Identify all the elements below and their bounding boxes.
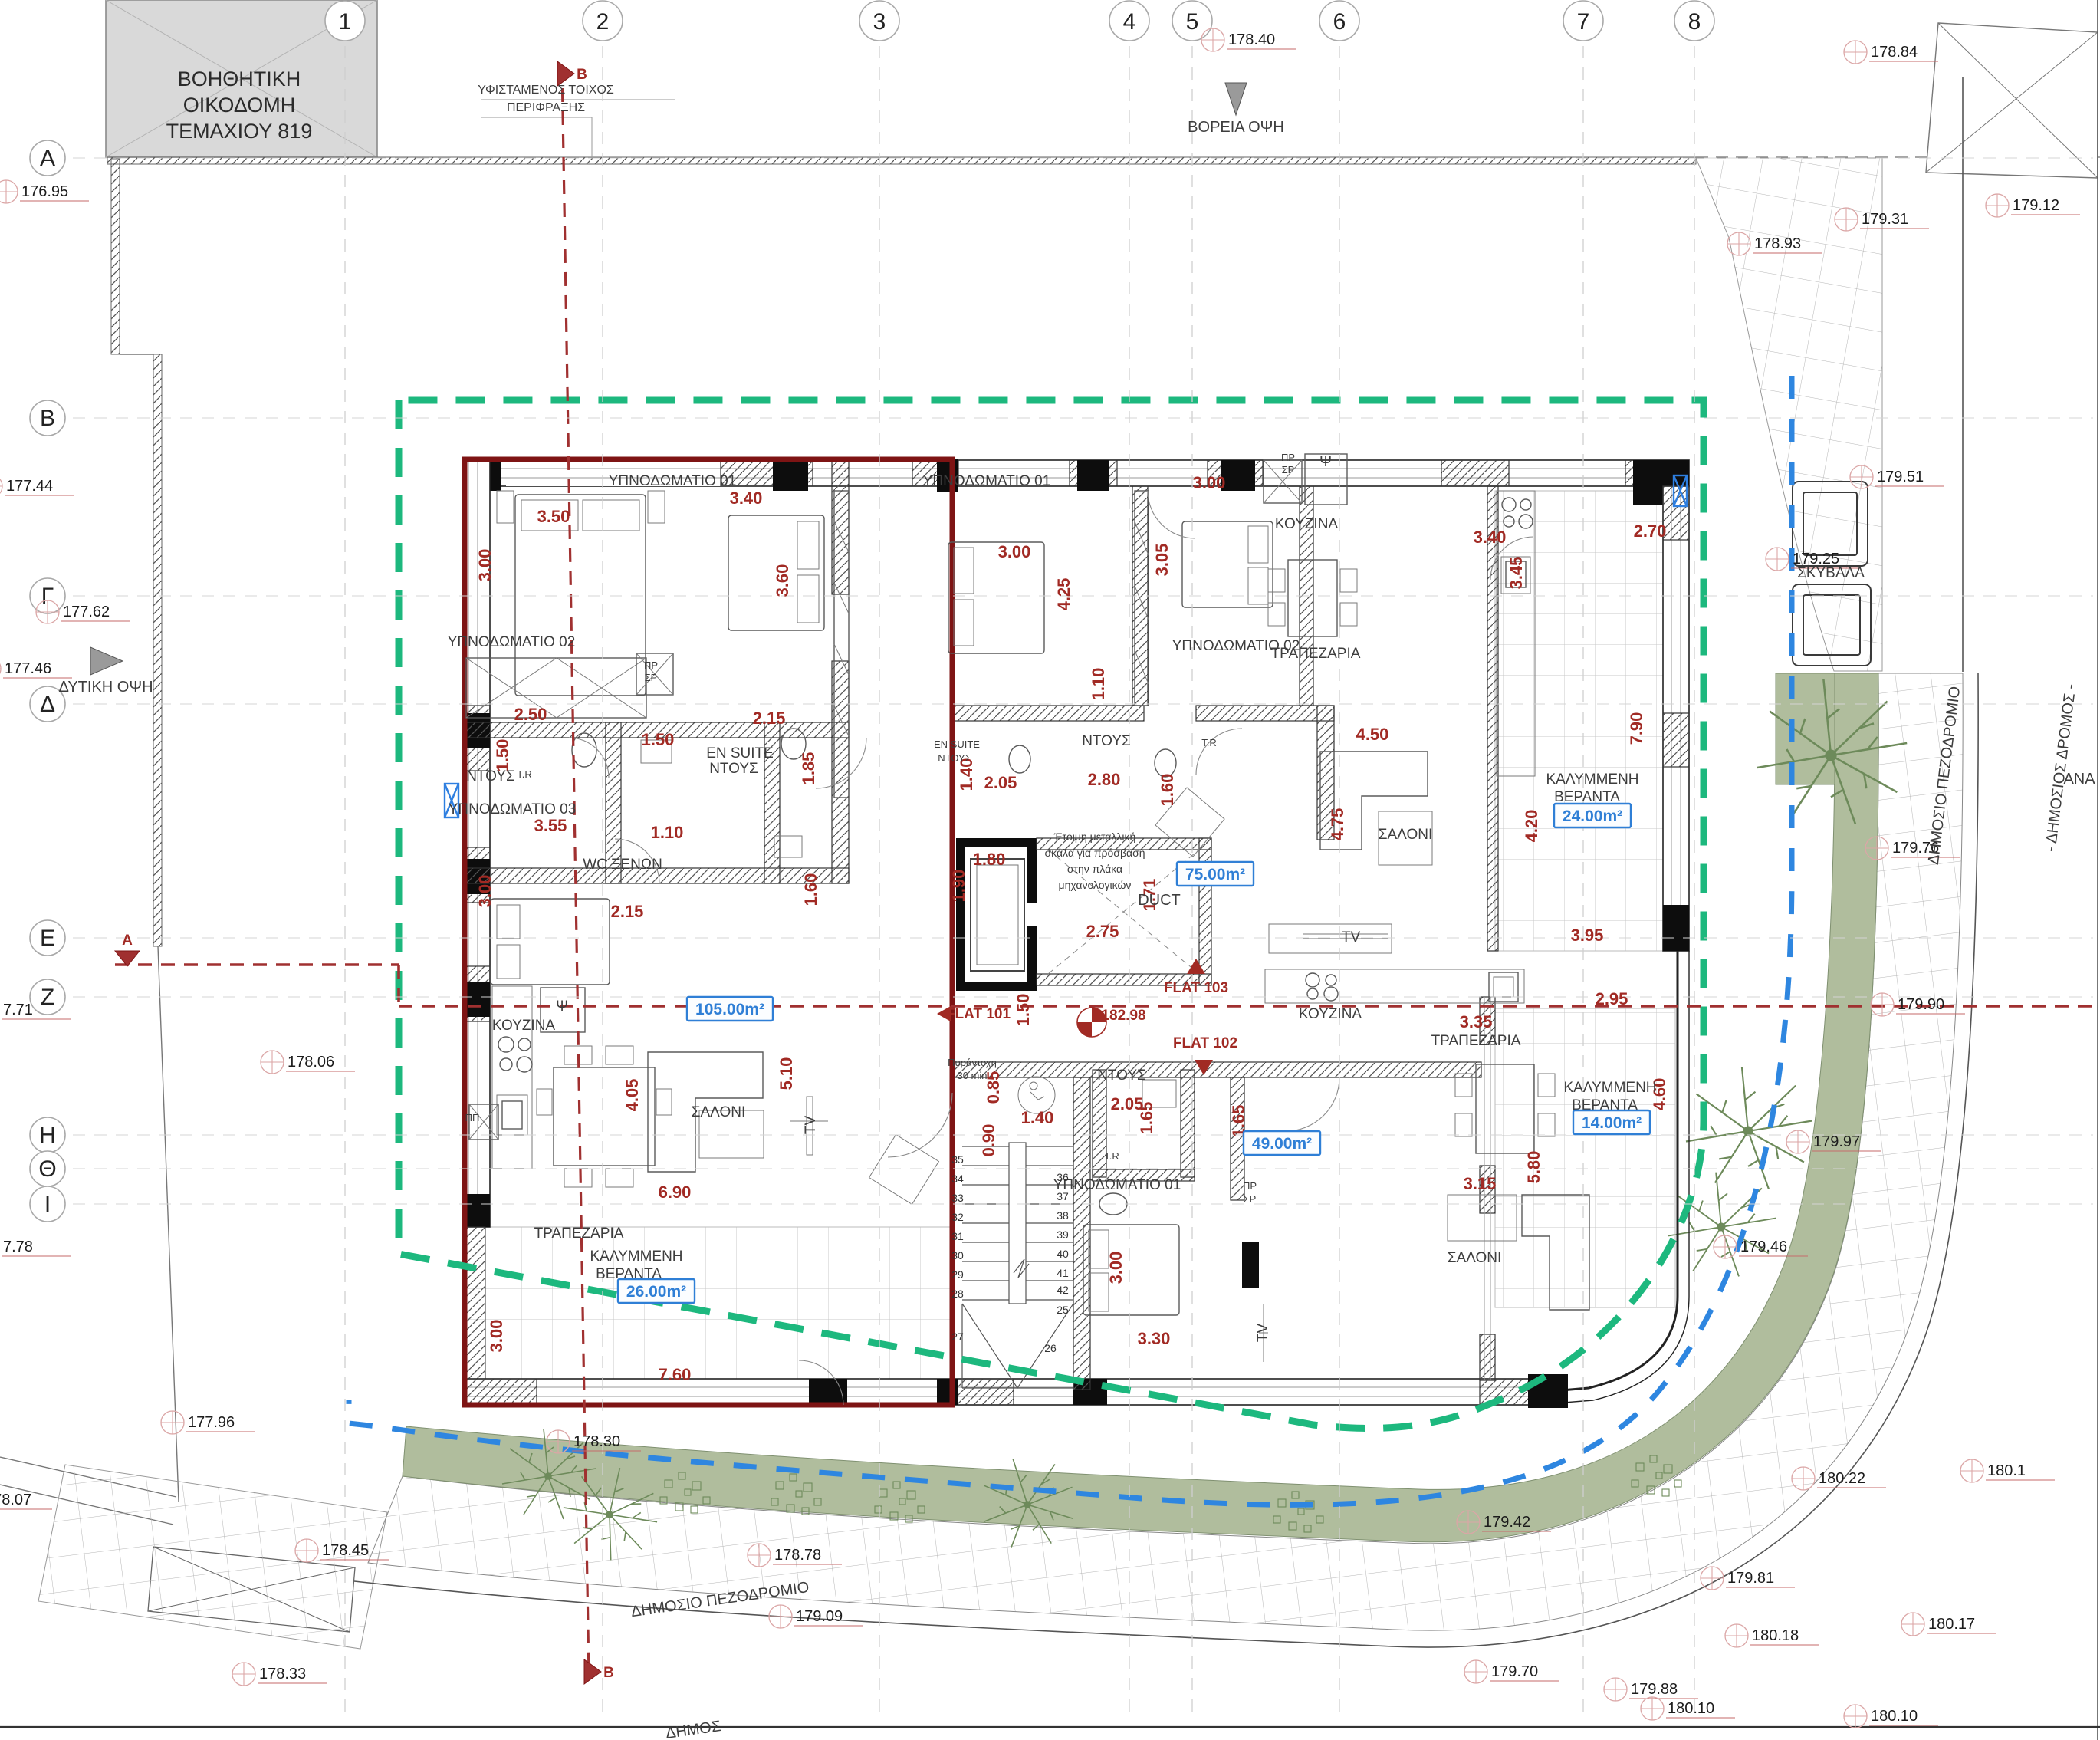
duct-ladder-note: Έτοιμη μεταλλικήσκάλα για πρόσβασηστην π… [1044,831,1145,891]
svg-text:μηχανολογικών: μηχανολογικών [1059,879,1132,891]
grid-bubble-3: 3 [859,1,899,41]
label-υπνοδωματιο-02: ΥΠΝΟΔΩΜΑΤΙΟ 02 [448,634,576,650]
floor-plan-page: 12345678ABΓΔEZHΘI 176.95177.44177.62177.… [0,0,2100,1740]
dimension-3-50: 3.50 [537,507,570,526]
svg-text:Δ: Δ [40,692,55,717]
svg-text:180.10: 180.10 [1668,1700,1714,1717]
svg-text:B: B [577,67,587,83]
dimension-2-80: 2.80 [1088,770,1121,789]
dimension-3-30: 3.30 [1138,1329,1171,1348]
label-t-r: T.R [1104,1150,1119,1162]
area-badge-26-00m: 26.00m² [618,1279,695,1303]
label-en-suite: EN SUITE [934,738,980,750]
dimension-6-90: 6.90 [659,1182,692,1202]
stair-step-26: 26 [1044,1342,1057,1354]
dimension-3-00: 3.00 [998,542,1031,561]
stair-step-34: 34 [951,1173,964,1185]
stair-step-31: 31 [951,1230,964,1242]
stair-step-30: 30 [951,1249,964,1261]
label-δημος: ΔΗΜΟΣ [665,1718,722,1740]
svg-text:179.46: 179.46 [1740,1238,1787,1255]
dimension-3-00: 3.00 [1106,1252,1126,1284]
svg-text:176.95: 176.95 [21,183,68,200]
label-ντους: ΝΤΟΥΣ [466,768,515,784]
grid-bubble-z: Z [30,979,65,1015]
spot-elevation-180-17: 180.17 [1901,1613,1996,1636]
svg-text:3: 3 [873,9,886,35]
dimension-1-65: 1.65 [1137,1102,1156,1135]
spot-elevation-178-06: 178.06 [261,1051,355,1074]
label-κουζινα: ΚΟΥΖΙΝΑ [1299,1006,1362,1022]
svg-text:178.07: 178.07 [0,1492,31,1508]
note-blocks: ΒΟΗΘΗΤΙΚΗΟΙΚΟΔΟΜΗΤΕΜΑΧΙΟΥ 819ΥΦΙΣΤΑΜΕΝΟΣ… [166,67,1145,1081]
label-σρ: ΣΡ [1244,1193,1257,1205]
svg-text:179.09: 179.09 [796,1608,843,1625]
dimension-4-20: 4.20 [1522,810,1541,843]
svg-text:ΥΦΙΣΤΑΜΕΝΟΣ ΤΟΙΧΟΣ: ΥΦΙΣΤΑΜΕΝΟΣ ΤΟΙΧΟΣ [478,84,614,97]
dimension-4-05: 4.05 [623,1079,642,1112]
label-δημοσιος-δρομος: - ΔΗΜΟΣΙΟΣ ΔΡΟΜΟΣ - [2042,683,2080,854]
svg-text:178.78: 178.78 [774,1547,821,1564]
label-ντους: ΝΤΟΥΣ [1082,733,1131,749]
grid-bubble-6: 6 [1319,1,1359,41]
spot-elevation-178-40: 178.40 [1201,28,1296,51]
grid-bubble-e: E [30,920,65,956]
svg-text:FLAT 102: FLAT 102 [1173,1035,1237,1051]
label-ντους: ΝΤΟΥΣ [1097,1067,1146,1084]
svg-text:Έτοιμη μεταλλική: Έτοιμη μεταλλική [1053,831,1136,843]
dimension-1-40: 1.40 [1021,1108,1054,1127]
level-marker: +182.98 [1077,1008,1146,1037]
svg-text:24.00m²: 24.00m² [1563,808,1622,825]
dimension-3-95: 3.95 [1571,926,1604,945]
svg-text:A: A [122,932,133,949]
spot-elevation-180-10: 180.10 [1641,1697,1735,1720]
svg-text:178.30: 178.30 [573,1433,620,1450]
svg-text:ΟΙΚΟΔΟΜΗ: ΟΙΚΟΔΟΜΗ [183,94,296,117]
label-tv: TV [1342,929,1361,946]
svg-text:178.93: 178.93 [1754,235,1801,252]
label-τραπεζαρια: ΤΡΑΠΕΖΑΡΙΑ [1431,1033,1521,1049]
svg-text:I: I [44,1192,51,1217]
label-πρ: ΠΡ [1243,1180,1257,1192]
label-ντους: ΝΤΟΥΣ [709,761,758,777]
dimension-3-00: 3.00 [1193,473,1226,492]
dimension-4-75: 4.75 [1328,808,1347,841]
label-σαλονι: ΣΑΛΟΝΙ [692,1104,746,1120]
label-wc-ξενων: WC ΞΕΝΩΝ [583,857,662,873]
svg-text:49.00m²: 49.00m² [1252,1135,1312,1153]
svg-text:E: E [40,926,55,951]
label-σαλονι: ΣΑΛΟΝΙ [1448,1250,1502,1266]
label-σρ: ΣΡ [1282,464,1295,475]
fence-label: ΥΦΙΣΤΑΜΕΝΟΣ ΤΟΙΧΟΣΠΕΡΙΦΡΑΞΗΣ [478,84,614,114]
dimension-1-60: 1.60 [801,873,820,906]
svg-text:30 min: 30 min [957,1070,987,1081]
svg-text:Πυράντοχη: Πυράντοχη [948,1057,997,1068]
svg-text:178.33: 178.33 [259,1666,306,1682]
dimension-3-00: 3.00 [475,549,495,582]
label-κουζινα: ΚΟΥΖΙΝΑ [492,1018,556,1034]
svg-text:177.44: 177.44 [6,478,53,495]
svg-text:179.42: 179.42 [1484,1514,1530,1531]
svg-text:179.70: 179.70 [1491,1663,1538,1680]
dimension-3-60: 3.60 [773,564,792,597]
label-τραπεζαρια: ΤΡΑΠΕΖΑΡΙΑ [1271,646,1361,662]
level-marker: +182.98 [1077,1008,1146,1037]
dimension-1-50: 1.50 [493,739,512,772]
section-marker-b-2180: B [584,1659,614,1684]
svg-text:179.51: 179.51 [1877,469,1924,485]
svg-text:ΒΟΗΘΗΤΙΚΗ: ΒΟΗΘΗΤΙΚΗ [178,67,301,90]
label-καλυμμενη: ΚΑΛΥΜΜΕΝΗ [1563,1080,1656,1096]
dimension-3-35: 3.35 [1460,1012,1493,1031]
stair-step-27: 27 [951,1330,964,1343]
stair-step-36: 36 [1057,1171,1069,1183]
svg-text:179.90: 179.90 [1898,996,1944,1013]
svg-text:A: A [40,146,55,171]
svg-text:180.10: 180.10 [1871,1708,1918,1725]
dimension-1-50: 1.50 [1014,994,1033,1027]
stair-step-35: 35 [951,1153,964,1166]
svg-text:+182.98: +182.98 [1093,1008,1145,1024]
svg-text:8: 8 [1688,9,1701,35]
svg-text:7.78: 7.78 [3,1238,33,1255]
label-σρ: ΣΡ [645,672,658,683]
dimension-3-00: 3.00 [487,1320,506,1353]
svg-text:Z: Z [41,985,54,1010]
label-σκυβαλα: ΣΚΥΒΑΛΑ [1797,565,1865,581]
stair-step-41: 41 [1057,1267,1069,1279]
section-marker-b-96: B [557,61,587,86]
spot-elevation-179-81: 179.81 [1701,1567,1795,1590]
spot-elevation-7-78: 7.78 [0,1235,71,1258]
planter-east [1776,673,1835,784]
svg-text:178.84: 178.84 [1871,44,1918,61]
stair-step-40: 40 [1057,1248,1069,1260]
label-υπνοδωματιο-01: ΥΠΝΟΔΩΜΑΤΙΟ 01 [923,473,1051,489]
dimension-1-90: 1.90 [949,870,968,903]
label-κουζινα: ΚΟΥΖΙΝΑ [1275,516,1339,532]
svg-text:179.12: 179.12 [2013,197,2059,214]
svg-text:4: 4 [1123,9,1136,35]
stair-step-32: 32 [951,1211,964,1223]
grid-bubble-a: A [30,140,65,176]
label-καλυμμενη: ΚΑΛΥΜΜΕΝΗ [1546,771,1638,788]
spot-elevation-178-33: 178.33 [232,1663,327,1686]
building-layer [445,454,1871,1408]
label-ψ: Ψ [556,998,568,1015]
stair-step-29: 29 [951,1268,964,1281]
svg-text:75.00m²: 75.00m² [1185,866,1245,883]
grid-bubble-h: H [30,1117,65,1153]
stair-step-25: 25 [1057,1304,1069,1316]
svg-text:180.22: 180.22 [1819,1470,1865,1487]
dimension-1-60: 1.60 [1158,774,1177,807]
dimension-3-55: 3.55 [534,816,567,835]
label-t-r: T.R [1201,737,1217,748]
svg-text:2: 2 [596,9,610,35]
spot-elevation-179-70: 179.70 [1464,1660,1559,1683]
grid-bubble-1: 1 [325,1,365,41]
svg-text:178.45: 178.45 [322,1542,369,1559]
svg-text:B: B [603,1665,614,1681]
svg-text:179.81: 179.81 [1727,1570,1774,1587]
dimension-1-10: 1.10 [1089,668,1108,701]
svg-text:ΠΕΡΙΦΡΑΞΗΣ: ΠΕΡΙΦΡΑΞΗΣ [507,101,585,114]
spot-elevation-180-1: 180.1 [1960,1459,2055,1482]
area-badge-49-00m: 49.00m² [1244,1131,1320,1155]
dimension-3-05: 3.05 [1152,544,1172,577]
dimension-4-25: 4.25 [1054,578,1073,611]
svg-text:179.88: 179.88 [1631,1681,1678,1698]
svg-text:FLAT 103: FLAT 103 [1164,980,1228,996]
svg-text:26.00m²: 26.00m² [626,1283,686,1301]
dimension-1-85: 1.85 [799,752,818,785]
dimension-5-80: 5.80 [1524,1151,1543,1184]
dimension-2-75: 2.75 [1086,922,1119,941]
spot-elevation-177-46: 177.46 [0,657,72,680]
grid-bubble-2: 2 [583,1,623,41]
label-πρ: ΠΡ [1281,452,1295,463]
svg-text:177.46: 177.46 [5,660,51,677]
dimension-4-50: 4.50 [1356,725,1389,744]
spot-elevation-176-95: 176.95 [0,180,89,203]
dimension-1-80: 1.80 [973,850,1006,869]
grid-bubble-b: B [30,400,65,436]
svg-text:179.97: 179.97 [1813,1133,1860,1150]
dimension-7-60: 7.60 [659,1365,692,1384]
dimension-7-90: 7.90 [1627,712,1646,745]
svg-text:B: B [40,406,55,431]
svg-text:1: 1 [339,9,352,35]
label-ππ: ΠΠ [465,1112,480,1123]
label-duct: DUCT [1138,892,1181,909]
spot-elevation-178-07: 178.07 [0,1488,52,1511]
dimension-2-50: 2.50 [514,705,547,724]
spot-elevation-179-12: 179.12 [1986,194,2080,217]
veranda-102 [1495,1008,1675,1307]
west-fence-upper [111,159,120,354]
neighbor-roof-ne [1926,23,2098,178]
west-fence-lower [153,354,162,946]
svg-text:7: 7 [1577,9,1590,35]
spot-elevation-180-10: 180.10 [1844,1705,1938,1728]
label-en-suite: EN SUITE [706,745,774,761]
dimension-2-15: 2.15 [753,709,786,728]
west-facade-triangle [90,647,123,675]
label-υπνοδωματιο-03: ΥΠΝΟΔΩΜΑΤΙΟ 03 [449,801,577,817]
aux-building-label: ΒΟΗΘΗΤΙΚΗΟΙΚΟΔΟΜΗΤΕΜΑΧΙΟΥ 819 [166,67,313,143]
grid-bubble-7: 7 [1563,1,1603,41]
svg-text:Θ: Θ [38,1156,56,1182]
dimension-2-15: 2.15 [611,902,644,921]
svg-text:σκάλα για πρόσβαση: σκάλα για πρόσβαση [1044,847,1145,859]
stair-step-33: 33 [951,1192,964,1204]
grid-bubble-8: 8 [1674,1,1714,41]
label-ψ: Ψ [1319,454,1332,470]
label-ντους: ΝΤΟΥΣ [938,752,971,764]
area-badge-105-00m: 105.00m² [687,997,773,1021]
label-τραπεζαρια: ΤΡΑΠΕΖΑΡΙΑ [534,1225,624,1242]
svg-text:ΤΕΜΑΧΙΟΥ 819: ΤΕΜΑΧΙΟΥ 819 [166,120,313,143]
svg-text:FLAT 101: FLAT 101 [946,1006,1011,1022]
spot-elevation-179-09: 179.09 [769,1605,863,1628]
dimension-1-10: 1.10 [651,823,684,842]
svg-text:180.18: 180.18 [1752,1627,1799,1644]
label-καλυμμενη: ΚΑΛΥΜΜΕΝΗ [590,1248,682,1265]
grid-bubble-5: 5 [1172,1,1212,41]
label-tv: TV [803,1116,819,1135]
stair-step-42: 42 [1057,1284,1069,1296]
label-δυτικη-οψη: ΔΥΤΙΚΗ ΟΨΗ [58,679,153,696]
svg-text:177.96: 177.96 [188,1414,235,1431]
label-βορεια-οψη: ΒΟΡΕΙΑ ΟΨΗ [1188,119,1284,136]
svg-text:178.40: 178.40 [1228,31,1275,48]
dimension-5-10: 5.10 [777,1057,796,1090]
spot-elevation-177-44: 177.44 [0,475,74,498]
grid-bubble-θ: Θ [30,1151,65,1186]
svg-text:5: 5 [1186,9,1199,35]
label-tv: TV [1255,1324,1271,1343]
svg-text:7.71: 7.71 [3,1002,33,1018]
grid-bubble-4: 4 [1109,1,1149,41]
label-t-r: T.R [517,768,532,780]
floor-plan-canvas: 12345678ABΓΔEZHΘI 176.95177.44177.62177.… [0,0,2100,1740]
svg-text:14.00m²: 14.00m² [1582,1114,1642,1132]
marker-flat-101: FLAT 101 [937,1006,1011,1022]
svg-text:178.06: 178.06 [288,1054,334,1071]
area-badge-14-00m: 14.00m² [1573,1110,1650,1134]
svg-text:179.31: 179.31 [1862,211,1908,228]
dimension-2-05: 2.05 [984,773,1017,792]
svg-text:177.62: 177.62 [63,604,110,620]
stair-step-28: 28 [951,1288,964,1300]
dimension-3-40: 3.40 [1474,528,1507,547]
north-facade-triangle [1225,83,1247,115]
dimension-3-45: 3.45 [1507,557,1526,590]
label-σαλονι: ΣΑΛΟΝΙ [1379,827,1433,843]
area-badge-24-00m: 24.00m² [1554,804,1631,827]
area-badge-75-00m: 75.00m² [1177,862,1254,886]
label-υπνοδωματιο-01: ΥΠΝΟΔΩΜΑΤΙΟ 01 [1053,1177,1181,1193]
svg-text:H: H [39,1123,56,1148]
svg-text:180.17: 180.17 [1928,1616,1975,1633]
svg-text:105.00m²: 105.00m² [695,1001,764,1018]
svg-text:180.1: 180.1 [1987,1462,2026,1479]
spot-elevation-178-84: 178.84 [1844,41,1938,64]
dimension-2-70: 2.70 [1634,521,1667,541]
dimension-3-40: 3.40 [730,488,763,508]
svg-text:στην πλάκα: στην πλάκα [1067,863,1122,875]
dimension-3-15: 3.15 [1464,1174,1497,1193]
grid-bubble-i: I [30,1186,65,1222]
stair-step-39: 39 [1057,1229,1069,1241]
dimension-1-50: 1.50 [642,730,675,749]
svg-text:6: 6 [1333,9,1346,35]
spot-elevation-180-18: 180.18 [1725,1624,1819,1647]
dimension-3-00: 3.00 [475,875,495,908]
dimension-0-90: 0.90 [979,1124,998,1157]
dimension-2-95: 2.95 [1596,989,1628,1008]
stair-step-38: 38 [1057,1209,1069,1222]
stair-step-37: 37 [1057,1190,1069,1202]
label-πρ: ΠΡ [644,659,658,671]
label-υπνοδωματιο-01: ΥΠΝΟΔΩΜΑΤΙΟ 01 [609,473,737,489]
